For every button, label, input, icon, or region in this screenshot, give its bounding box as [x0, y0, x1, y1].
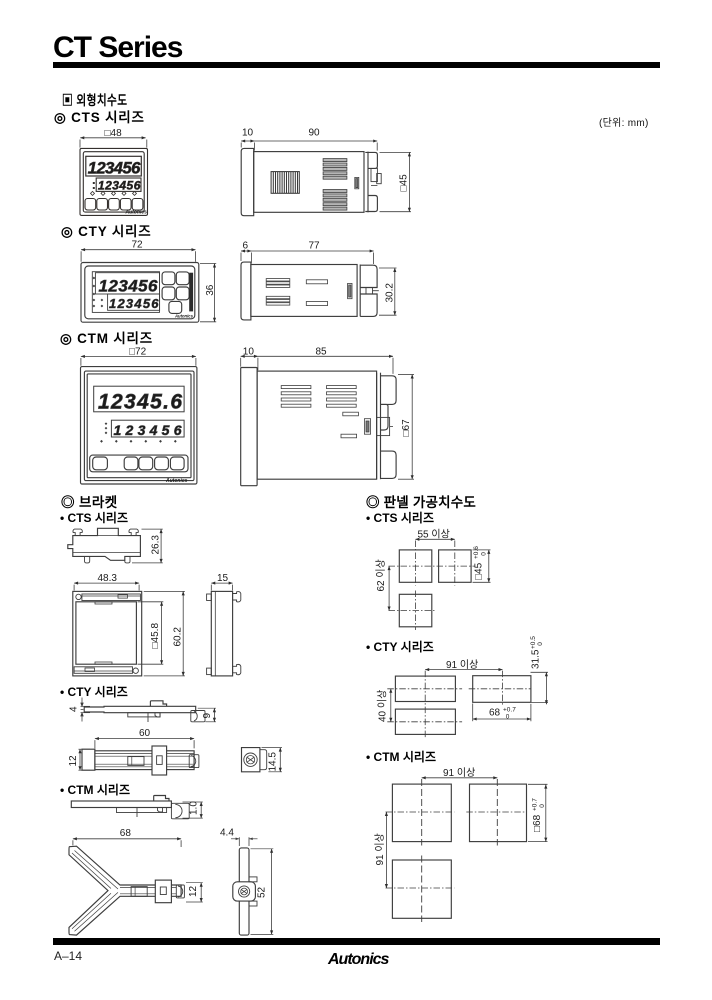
svg-text:31.5: 31.5: [531, 649, 542, 669]
svg-text:123456: 123456: [109, 296, 159, 311]
svg-text:123456: 123456: [99, 277, 159, 296]
svg-text:26.3: 26.3: [151, 535, 162, 555]
svg-text:□68: □68: [532, 814, 543, 832]
svg-text:48.3: 48.3: [98, 573, 118, 584]
svg-text:55 이상: 55 이상: [418, 529, 450, 541]
svg-text:Autonics: Autonics: [165, 478, 188, 484]
svg-text:123456: 123456: [114, 422, 182, 438]
svg-text:□45: □45: [399, 174, 410, 192]
svg-text:□67: □67: [401, 419, 412, 437]
svg-text:12: 12: [188, 885, 199, 897]
svg-text:60: 60: [139, 728, 151, 739]
svg-text:40 이상: 40 이상: [377, 690, 389, 722]
svg-text:91 이상: 91 이상: [374, 833, 386, 865]
svg-text:0: 0: [539, 804, 546, 809]
svg-text:12: 12: [68, 755, 79, 767]
svg-text:4: 4: [69, 706, 80, 712]
svg-text:□48: □48: [105, 128, 123, 139]
svg-text:10: 10: [242, 128, 254, 139]
svg-text:14.5: 14.5: [268, 752, 279, 772]
svg-text:□72: □72: [129, 346, 147, 357]
svg-text:15: 15: [217, 573, 229, 584]
svg-text:Autonics: Autonics: [125, 209, 148, 215]
svg-text:12345.6: 12345.6: [98, 391, 182, 414]
svg-text:+0.7: +0.7: [503, 707, 516, 714]
svg-text:30.2: 30.2: [384, 283, 395, 303]
svg-text:1.0: 1.0: [188, 801, 199, 815]
svg-text:52: 52: [257, 886, 268, 898]
svg-text:68: 68: [120, 828, 132, 839]
svg-text:72: 72: [132, 239, 144, 250]
svg-text:9: 9: [202, 713, 213, 719]
svg-text:0: 0: [481, 552, 488, 557]
svg-text:91 이상: 91 이상: [446, 659, 478, 671]
svg-text:□45: □45: [474, 562, 485, 580]
svg-text:68: 68: [489, 707, 501, 718]
svg-text:85: 85: [316, 347, 328, 358]
svg-text:60.2: 60.2: [172, 627, 183, 647]
svg-text:0: 0: [505, 714, 510, 721]
svg-text:+0.5: +0.5: [530, 636, 537, 649]
svg-text:6: 6: [243, 241, 249, 252]
svg-text:4.4: 4.4: [220, 828, 234, 839]
svg-text:123456: 123456: [88, 159, 141, 177]
svg-text:Autonics: Autonics: [174, 313, 194, 318]
svg-text:+0.7: +0.7: [532, 798, 539, 811]
svg-text:□45.8: □45.8: [150, 623, 161, 649]
svg-text:77: 77: [309, 241, 321, 252]
svg-text:0: 0: [537, 642, 544, 647]
svg-text:+0.6: +0.6: [473, 546, 480, 559]
svg-text:10: 10: [243, 347, 255, 358]
svg-text:123456: 123456: [98, 179, 141, 193]
svg-text:62 이상: 62 이상: [375, 559, 387, 591]
svg-text:90: 90: [309, 128, 321, 139]
